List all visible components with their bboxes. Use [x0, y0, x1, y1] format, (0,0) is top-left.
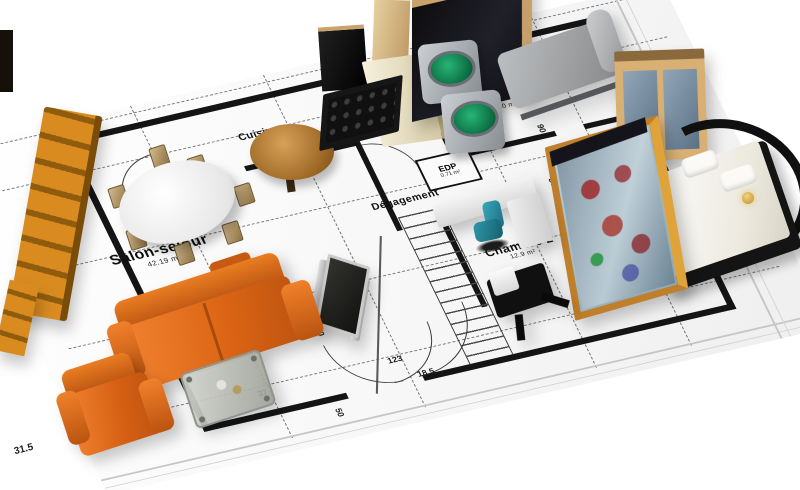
dimension-label: 50: [333, 407, 347, 417]
table-decor: [231, 384, 242, 395]
table-leg: [250, 355, 258, 363]
table-decor: [215, 379, 228, 392]
table-leg: [263, 395, 271, 403]
table-leg: [185, 376, 193, 384]
washing-machine: [440, 89, 506, 155]
floorplan-render: EDP 0.71 m² Salon-séjour 42.19 m² Cuisin…: [0, 0, 800, 490]
table-leg: [198, 416, 206, 424]
hob-burners: [325, 83, 396, 144]
black-chair-leg: [515, 314, 526, 341]
dimension-label: 31.5: [13, 442, 35, 457]
range-hood: [318, 24, 368, 91]
dark-panel-left-edge: [0, 30, 13, 92]
black-chair-leg: [541, 292, 570, 308]
bedside-lamp: [742, 192, 754, 204]
